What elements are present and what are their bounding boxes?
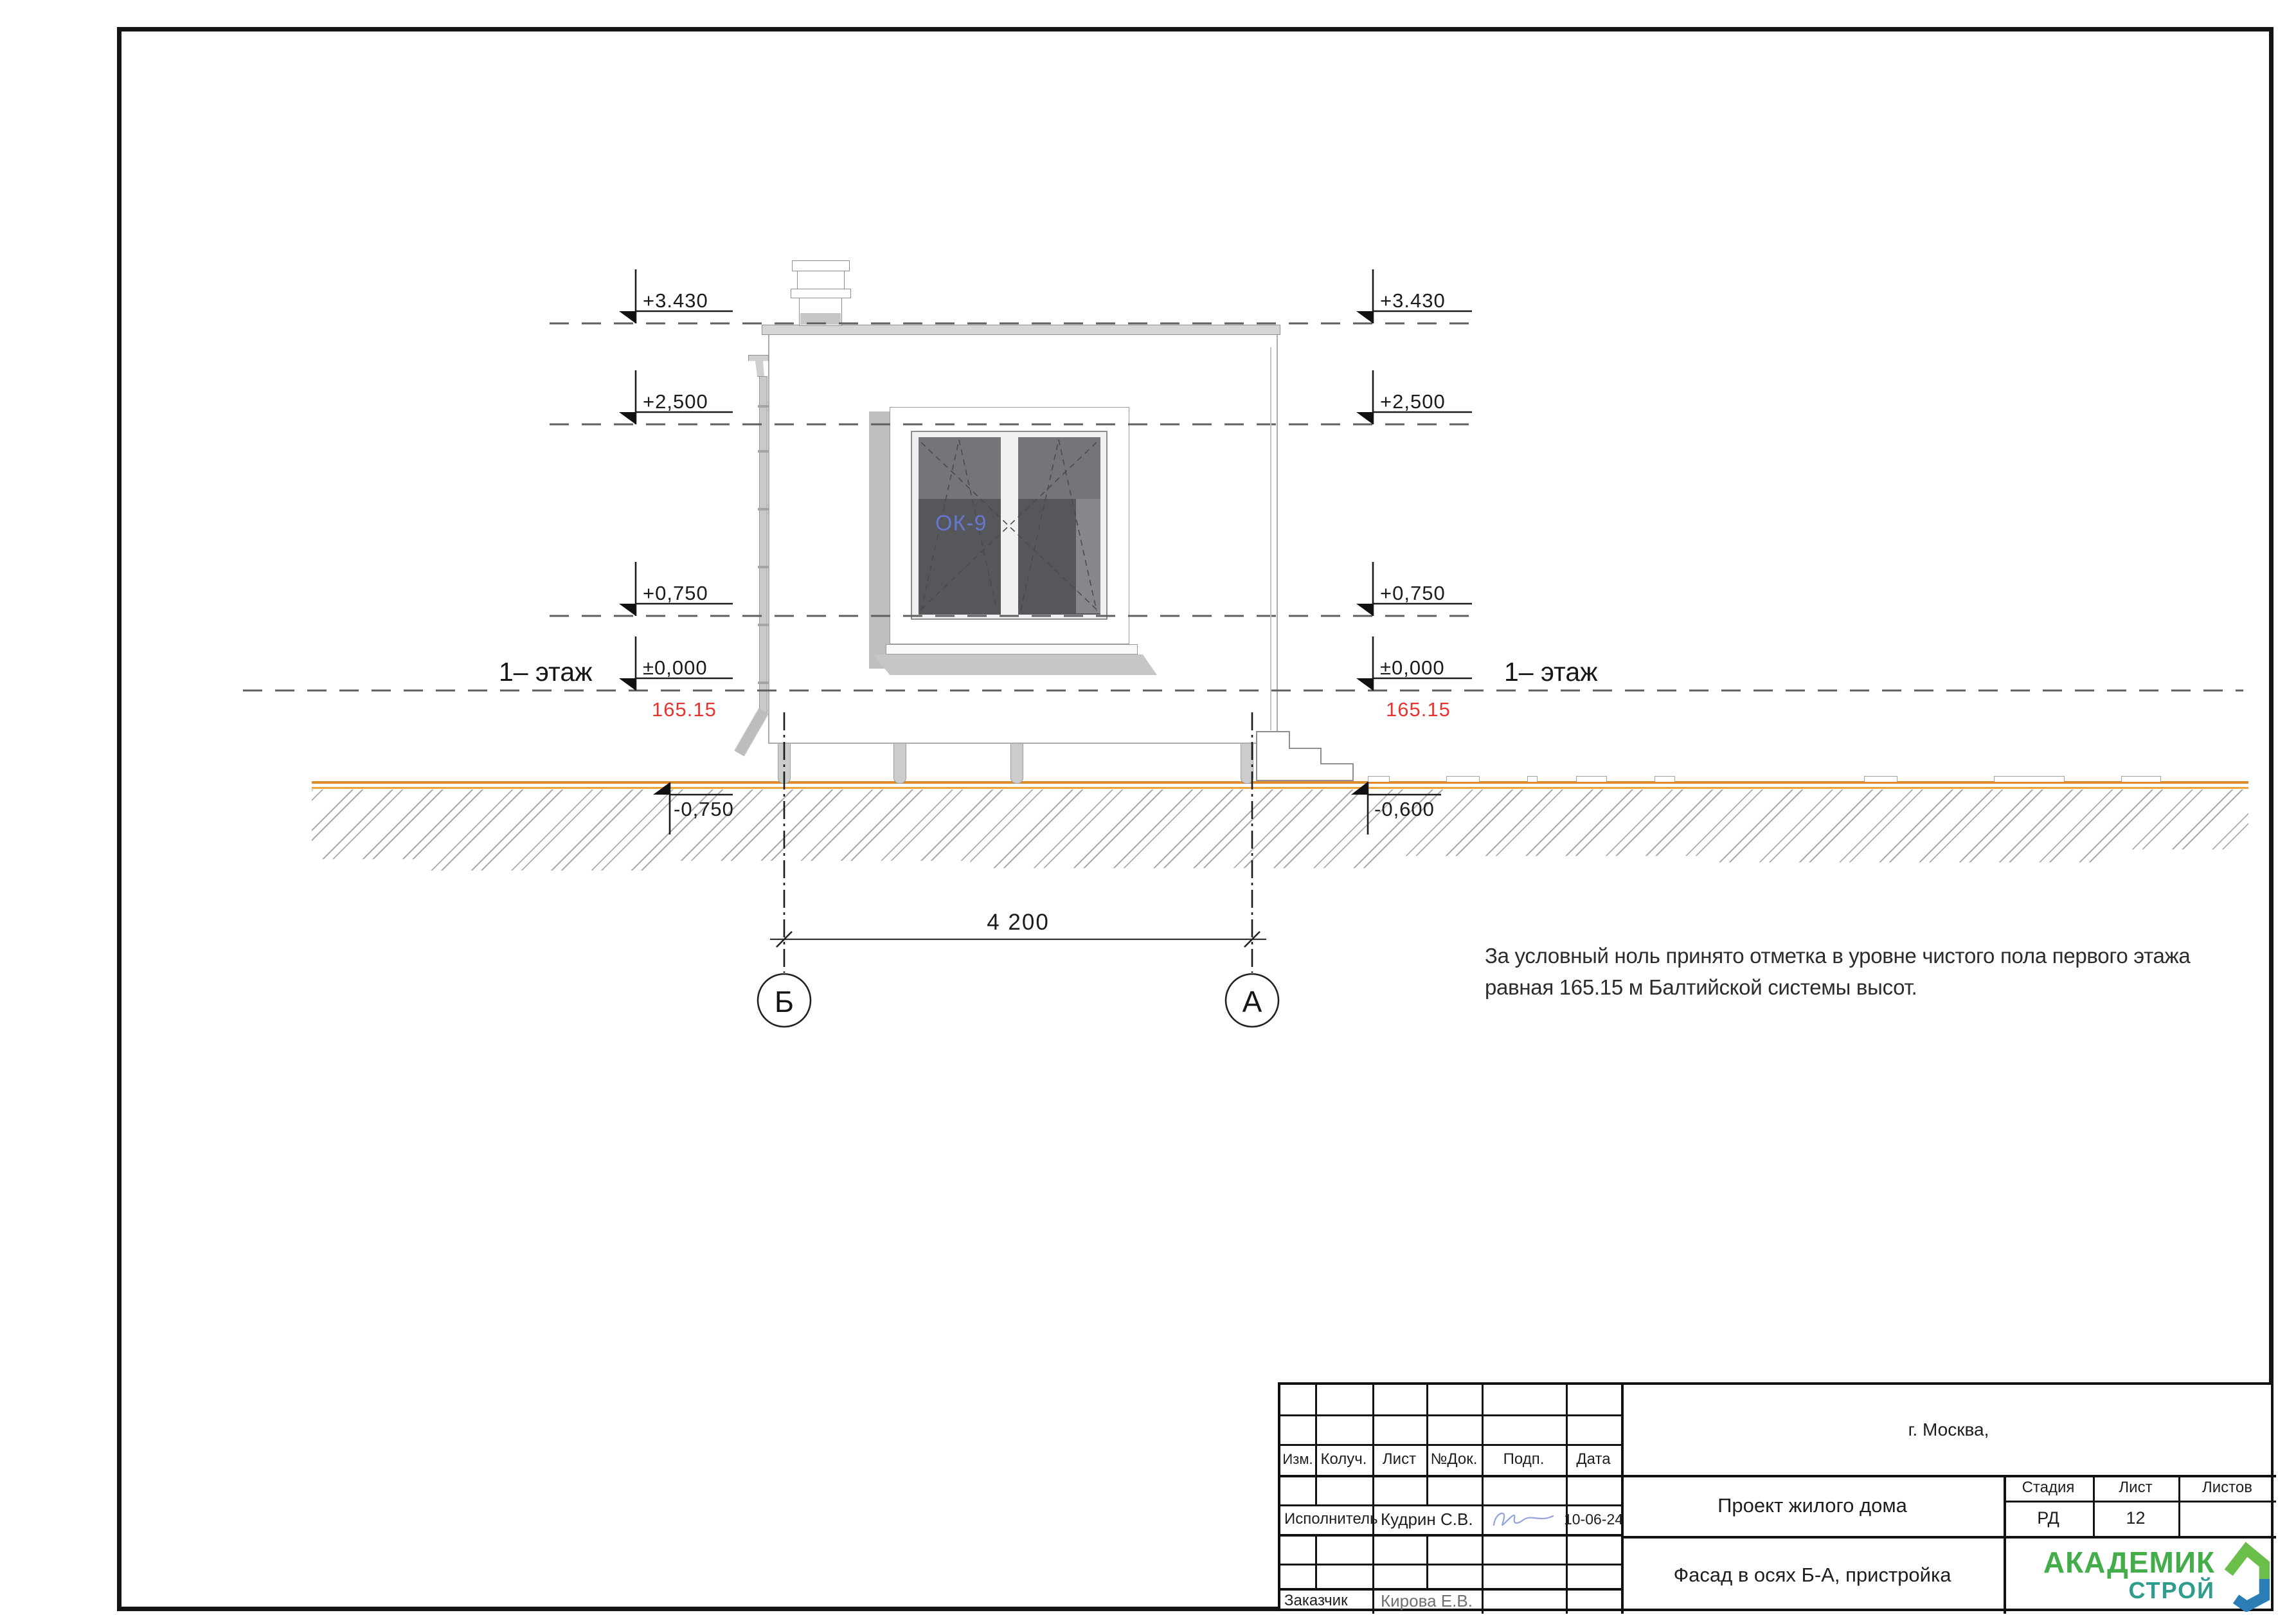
tb-sheets-value	[2178, 1501, 2276, 1536]
level-mark-right-2500: +2,500	[1380, 390, 1446, 413]
floor-label-left: 1– этаж	[499, 657, 593, 687]
tb-client-name: Кирова Е.В.	[1377, 1588, 1485, 1614]
tb-sheet-header: Лист	[2093, 1475, 2178, 1501]
floor-label-right: 1– этаж	[1504, 657, 1598, 687]
tb-header-koluch: Колуч.	[1315, 1444, 1372, 1475]
entrance-stairs	[1257, 732, 1353, 780]
company-logo: АКАДЕМИК СТРОЙ	[2005, 1536, 2276, 1614]
tb-project-title: Проект жилого дома	[1621, 1475, 2004, 1536]
tb-executor-date: 10-06-24	[1566, 1504, 1621, 1534]
level-mark-minus-0750: -0,750	[674, 798, 734, 821]
drawing-sheet: +3.430 +2,500 +0,750 ±0,000 +3.430 +2,50…	[0, 0, 2296, 1624]
logo-house-icon	[2220, 1540, 2273, 1612]
level-mark-left-0000: ±0,000	[643, 656, 708, 680]
tb-stage-header: Стадия	[2004, 1475, 2093, 1501]
axis-bubble-b: Б	[758, 984, 810, 1019]
datum-elevation-left: 165.15	[652, 698, 717, 721]
tb-city: г. Москва,	[1621, 1385, 2276, 1475]
level-mark-right-0750: +0,750	[1380, 582, 1446, 605]
title-block: Изм. Колуч. Лист №Док. Подп. Дата Исполн…	[1278, 1382, 2274, 1611]
note-line-2: равная 165.15 м Балтийской системы высот…	[1485, 971, 1917, 1003]
tb-sheets-header: Листов	[2178, 1475, 2276, 1501]
tb-doc-title: Фасад в осях Б-А, пристройка	[1621, 1536, 2004, 1614]
linework	[0, 0, 2296, 1624]
tb-header-data: Дата	[1566, 1444, 1621, 1475]
logo-text-akademik: АКАДЕМИК	[2011, 1545, 2215, 1580]
tb-header-podp: Подп.	[1482, 1444, 1566, 1475]
tb-sheet-value: 12	[2093, 1501, 2178, 1536]
window-tag: ОК-9	[935, 511, 987, 536]
axis-bubble-a: А	[1226, 984, 1278, 1019]
level-mark-left-3430: +3.430	[643, 289, 708, 312]
note-line-1: За условный ноль принято отметка в уровн…	[1485, 940, 2190, 971]
tb-executor-label: Исполнитель	[1280, 1504, 1376, 1534]
tb-header-list: Лист	[1372, 1444, 1426, 1475]
tb-client-label: Заказчик	[1280, 1588, 1376, 1614]
level-mark-left-2500: +2,500	[643, 390, 708, 413]
tb-executor-name: Кудрин С.В.	[1377, 1504, 1485, 1534]
logo-text-stroy: СТРОЙ	[2011, 1577, 2215, 1604]
dimension-value: 4 200	[951, 910, 1085, 935]
level-mark-left-0750: +0,750	[643, 582, 708, 605]
level-mark-right-3430: +3.430	[1380, 289, 1446, 312]
tb-header-izm: Изм.	[1280, 1444, 1315, 1475]
datum-elevation-right: 165.15	[1386, 698, 1451, 721]
signature	[1486, 1506, 1563, 1533]
tb-header-ndok: №Док.	[1426, 1444, 1482, 1475]
tb-stage-value: РД	[2004, 1501, 2093, 1536]
level-mark-right-0000: ±0,000	[1380, 656, 1445, 680]
level-mark-minus-0600: -0,600	[1374, 798, 1435, 821]
